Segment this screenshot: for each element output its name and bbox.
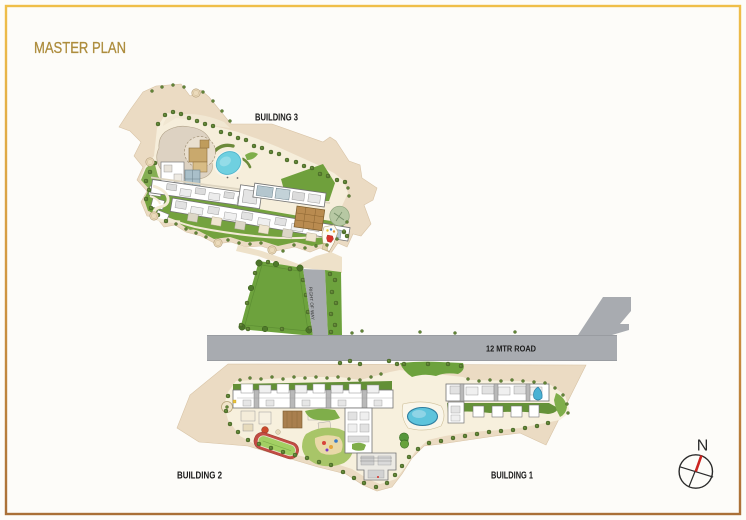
svg-text:N: N (697, 438, 709, 455)
svg-text:BUILDING 2: BUILDING 2 (177, 471, 222, 482)
svg-text:12 MTR ROAD: 12 MTR ROAD (486, 344, 536, 354)
svg-text:MASTER PLAN: MASTER PLAN (34, 40, 126, 57)
svg-text:BUILDING 1: BUILDING 1 (491, 471, 533, 482)
svg-text:BUILDING 3: BUILDING 3 (255, 113, 298, 124)
